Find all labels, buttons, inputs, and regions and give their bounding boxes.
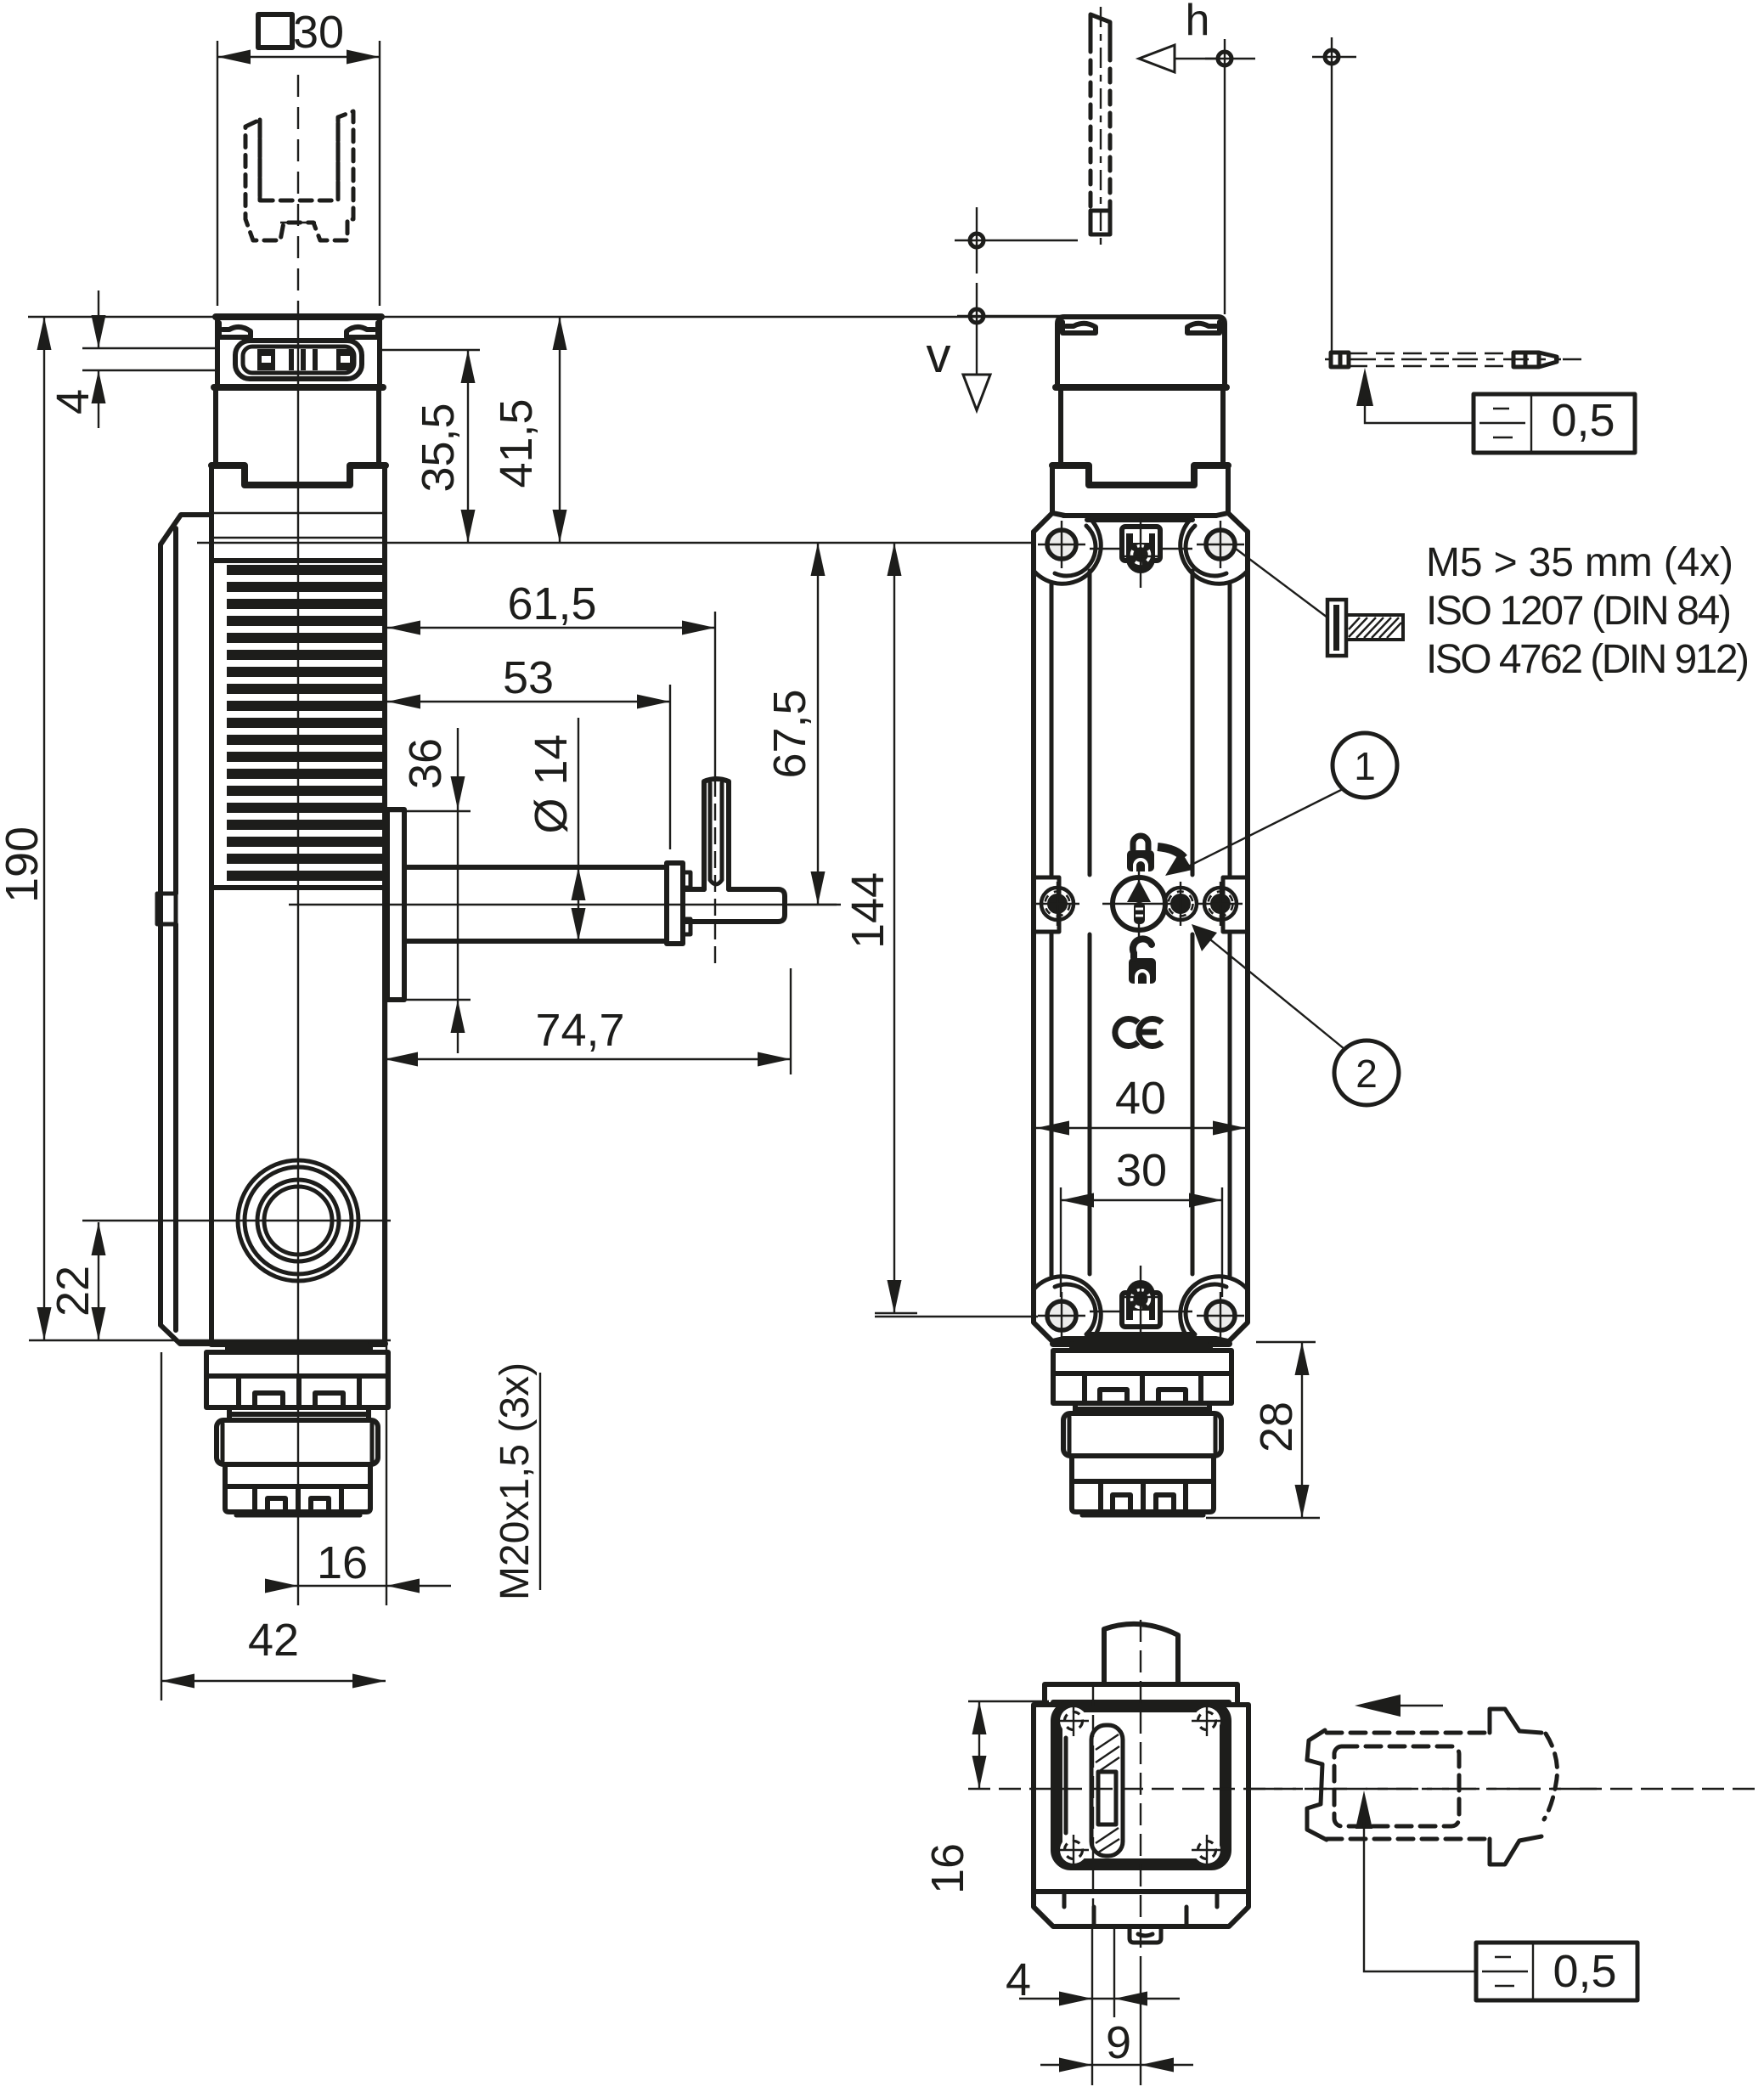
svg-text:74,7: 74,7 (535, 1005, 624, 1056)
svg-text:M5 > 35 mm (4x): M5 > 35 mm (4x) (1426, 540, 1733, 585)
svg-text:1: 1 (1354, 744, 1376, 788)
svg-text:28: 28 (1251, 1401, 1302, 1452)
svg-text:190: 190 (0, 826, 48, 903)
svg-text:61,5: 61,5 (507, 578, 596, 629)
svg-text:0,5: 0,5 (1553, 1946, 1616, 1997)
svg-text:41,5: 41,5 (491, 398, 542, 488)
svg-text:ISO 1207 (DIN 84): ISO 1207 (DIN 84) (1426, 589, 1732, 634)
svg-text:30: 30 (293, 7, 344, 58)
svg-text:Ø 14: Ø 14 (526, 734, 577, 833)
svg-text:67,5: 67,5 (764, 689, 815, 778)
svg-text:40: 40 (1115, 1073, 1166, 1124)
svg-text:36: 36 (400, 738, 451, 789)
svg-text:h: h (1186, 0, 1210, 45)
svg-text:9: 9 (1106, 2017, 1131, 2068)
svg-text:4: 4 (1006, 1954, 1031, 2005)
svg-text:16: 16 (922, 1843, 973, 1894)
svg-text:35,5: 35,5 (413, 403, 464, 492)
svg-text:4: 4 (48, 389, 99, 415)
svg-text:16: 16 (317, 1537, 368, 1588)
svg-text:M20x1,5 (3x): M20x1,5 (3x) (493, 1362, 538, 1600)
svg-text:22: 22 (48, 1266, 99, 1317)
svg-text:0,5: 0,5 (1551, 395, 1615, 446)
svg-text:2: 2 (1355, 1052, 1378, 1096)
svg-text:144: 144 (843, 872, 893, 949)
svg-text:42: 42 (248, 1615, 299, 1666)
svg-text:v: v (927, 328, 951, 383)
svg-text:30: 30 (1116, 1145, 1167, 1196)
svg-text:ISO 4762 (DIN 912): ISO 4762 (DIN 912) (1426, 637, 1750, 682)
svg-text:53: 53 (503, 652, 554, 703)
